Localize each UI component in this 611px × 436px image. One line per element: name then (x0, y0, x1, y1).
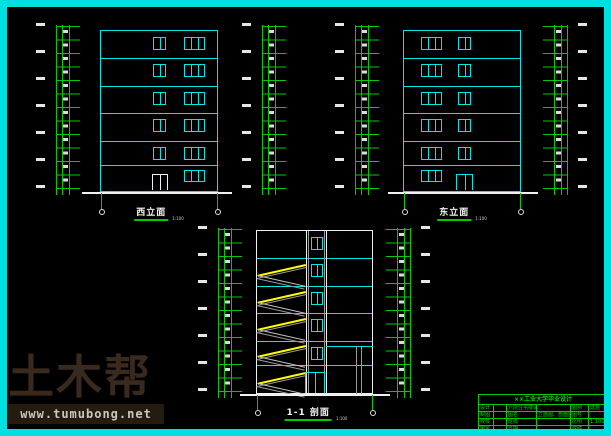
grid-axis-line (520, 193, 521, 209)
grid-bubble (215, 209, 221, 215)
window-mullion (191, 120, 192, 131)
window-mullion (191, 148, 192, 159)
title-block: ××工业大学毕业设计 设计 六层住宅楼设计 图别 建施 制图 图名 立面图、剖面… (478, 394, 608, 432)
window (184, 147, 205, 160)
dimension-labels (556, 30, 561, 192)
east-elevation-facade (403, 30, 521, 192)
window (421, 170, 442, 182)
window-mullion (191, 93, 192, 104)
dimension-ticks (386, 229, 410, 399)
title-block-cell: 审定 (479, 426, 494, 432)
level-labels (36, 23, 45, 193)
grid-bubble (518, 209, 524, 215)
section-title: 1-1 剖面 (285, 405, 332, 421)
window-mullion (428, 120, 429, 131)
dimension-ticks (56, 26, 80, 196)
grid-axis-line (372, 395, 373, 410)
watermark-brand: 土木帮 (8, 352, 164, 403)
dimension-line (397, 228, 398, 398)
ground-line (388, 192, 538, 194)
title-block-cell: 图别 (571, 405, 589, 411)
floor-line (101, 165, 217, 166)
window (153, 92, 166, 105)
window (153, 147, 166, 160)
window (311, 292, 323, 305)
dimension-ticks (262, 26, 286, 196)
window-mullion (317, 265, 318, 276)
grid-axis-line (257, 395, 258, 410)
section-floor-line (257, 286, 372, 287)
window-mullion (191, 65, 192, 76)
stairwell-wall-line (308, 231, 309, 393)
window (458, 64, 471, 77)
window-mullion (435, 148, 436, 159)
floor-line (404, 141, 520, 142)
title-block-cell (537, 419, 571, 425)
watermark-url: www.tumubong.net (20, 407, 152, 421)
window-mullion (435, 65, 436, 76)
window-mullion (198, 65, 199, 76)
window-mullion (428, 148, 429, 159)
window (184, 64, 205, 77)
window (311, 319, 323, 332)
stairwell-wall-line (306, 231, 307, 393)
entrance-wall-line (361, 346, 362, 394)
window-mullion (191, 38, 192, 49)
title-block-cell: 立面图、剖面图 (537, 412, 571, 418)
title-block-row: 校核 班级 比例 1:100 (479, 419, 607, 426)
window-mullion (317, 238, 318, 249)
title-block-cell: 日期 (507, 426, 537, 432)
window-mullion (428, 65, 429, 76)
floor-line (404, 165, 520, 166)
dimension-line (561, 25, 562, 195)
title-block-cell (494, 405, 507, 411)
window-mullion (435, 120, 436, 131)
west-elevation-label: 西立面1:100 (134, 200, 184, 221)
dimension-labels (362, 30, 367, 192)
title-block-cell: 制图 (479, 412, 494, 418)
dimension-ticks (218, 229, 242, 399)
dimension-ticks (543, 26, 567, 196)
grid-bubble (255, 410, 261, 416)
window-mullion (435, 38, 436, 49)
west-elevation-scale: 1:100 (172, 216, 184, 221)
window-mullion (191, 171, 192, 181)
title-block-cell: 比例 (571, 419, 589, 425)
section-floor-line (257, 341, 372, 342)
window-mullion (428, 93, 429, 104)
grid-axis-line (404, 193, 405, 209)
dimension-line (218, 228, 219, 398)
title-block-cell: 图号 (571, 412, 589, 418)
window (311, 237, 323, 250)
dimension-labels (269, 30, 274, 192)
grid-bubble (370, 410, 376, 416)
window (421, 92, 442, 105)
window-mullion (198, 38, 199, 49)
title-block-cell: 六层住宅楼设计 (507, 405, 537, 411)
title-block-cell: 班级 (507, 419, 537, 425)
title-block-cell (589, 412, 607, 418)
title-block-cell: 建施 (589, 405, 607, 411)
window-mullion (198, 148, 199, 159)
title-block-cell: 成绩 (571, 426, 589, 432)
window-mullion (465, 120, 466, 131)
floor-line (404, 58, 520, 59)
floor-line (404, 113, 520, 114)
floor-line (101, 141, 217, 142)
dimension-line (404, 228, 405, 398)
level-labels (335, 23, 344, 193)
watermark-url-bar: www.tumubong.net (8, 404, 164, 424)
stairwell-wall-line (324, 231, 325, 393)
window-mullion (198, 93, 199, 104)
floor-line (101, 86, 217, 87)
window (458, 92, 471, 105)
window-mullion (317, 348, 318, 359)
grid-axis-line (101, 193, 102, 209)
window (421, 37, 442, 50)
title-block-cell (494, 419, 507, 425)
title-block-cell (589, 426, 607, 432)
dimension-strip (335, 25, 379, 195)
window (421, 64, 442, 77)
west-elevation-title: 西立面 (134, 205, 168, 221)
window-mullion (198, 171, 199, 181)
east-elevation-label: 东立面1:100 (437, 200, 487, 221)
dimension-line (275, 25, 276, 195)
title-block-cell: 设计 (479, 405, 494, 411)
grid-axis-line (217, 193, 218, 209)
window-mullion (435, 171, 436, 181)
west-elevation-facade (100, 30, 218, 192)
title-block-cell: 图名 (507, 412, 537, 418)
floor-line (404, 86, 520, 87)
section-floor-line (257, 258, 372, 259)
floor-line (101, 58, 217, 59)
section-floor-line (257, 313, 372, 314)
window (311, 347, 323, 360)
dimension-strip (198, 228, 242, 398)
window (421, 119, 442, 132)
window-mullion (465, 148, 466, 159)
dimension-labels (225, 233, 230, 395)
title-block-row: 制图 图名 立面图、剖面图 图号 (479, 412, 607, 419)
door-leaf-line (160, 175, 161, 190)
stairwell-wall-line (326, 231, 327, 393)
window-mullion (160, 65, 161, 76)
dimension-line (56, 25, 57, 195)
title-block-cell (494, 412, 507, 418)
level-labels (578, 23, 587, 193)
entrance-door (152, 174, 168, 190)
level-labels (242, 23, 251, 193)
east-elevation-scale: 1:100 (475, 216, 487, 221)
entrance-door (456, 174, 473, 190)
stair-flight-lower (257, 356, 306, 371)
title-block-cell: 1:100 (589, 419, 607, 425)
title-block-cell: 校核 (479, 419, 494, 425)
window (184, 37, 205, 50)
section-label: 1-1 剖面1:100 (285, 400, 348, 421)
window-mullion (465, 65, 466, 76)
window (153, 64, 166, 77)
dimension-labels (63, 30, 68, 192)
window-mullion (160, 120, 161, 131)
window (458, 147, 471, 160)
ground-line (82, 192, 232, 194)
dimension-strip (242, 25, 286, 195)
section-door (305, 372, 325, 393)
entrance-wall-line (356, 346, 357, 394)
window-mullion (465, 93, 466, 104)
window-mullion (160, 93, 161, 104)
window (153, 37, 166, 50)
dimension-strip (386, 228, 430, 398)
window (153, 119, 166, 132)
window (458, 119, 471, 132)
dimension-line (554, 25, 555, 195)
window-mullion (435, 93, 436, 104)
section-body (256, 230, 373, 394)
door-leaf-line (465, 175, 466, 190)
floor-line (101, 113, 217, 114)
dimension-labels (399, 233, 404, 395)
window-mullion (160, 148, 161, 159)
window-mullion (317, 293, 318, 304)
section-scale: 1:100 (336, 416, 348, 421)
title-block-row: 设计 六层住宅楼设计 图别 建施 (479, 405, 607, 412)
level-labels (198, 226, 207, 396)
window (458, 37, 471, 50)
title-block-cell (494, 426, 507, 432)
watermark: 土木帮 www.tumubong.net (8, 352, 164, 424)
dimension-strip (543, 25, 587, 195)
dimension-line (69, 25, 70, 195)
title-block-cell (537, 426, 571, 432)
stair-flight-lower (257, 275, 306, 290)
window (184, 170, 205, 182)
canopy-line (326, 346, 373, 347)
cad-viewport: 西立面1:100 东立面1:100 1-1 剖面1:100 土木帮 www.tu… (0, 0, 611, 436)
dimension-line (262, 25, 263, 195)
stair-flight-lower (257, 302, 306, 317)
window-mullion (428, 38, 429, 49)
dimension-ticks (355, 26, 379, 196)
east-elevation-title: 东立面 (437, 205, 471, 221)
window (184, 119, 205, 132)
window-mullion (160, 38, 161, 49)
window-mullion (317, 320, 318, 331)
window-mullion (465, 38, 466, 49)
dimension-line (567, 25, 568, 195)
door-leaf-line (315, 373, 316, 393)
dimension-line (355, 25, 356, 195)
title-block-row: 审定 日期 成绩 (479, 426, 607, 432)
title-block-header: ××工业大学毕业设计 (479, 395, 607, 405)
dimension-line (231, 228, 232, 398)
window-mullion (198, 120, 199, 131)
grid-bubble (99, 209, 105, 215)
title-block-cell (537, 405, 571, 411)
window (184, 92, 205, 105)
dimension-line (410, 228, 411, 398)
ground-line (240, 394, 390, 396)
window (311, 264, 323, 277)
window-mullion (428, 171, 429, 181)
window (421, 147, 442, 160)
grid-bubble (402, 209, 408, 215)
dimension-strip (36, 25, 80, 195)
level-labels (421, 226, 430, 396)
dimension-line (368, 25, 369, 195)
section-floor-line (257, 365, 372, 366)
